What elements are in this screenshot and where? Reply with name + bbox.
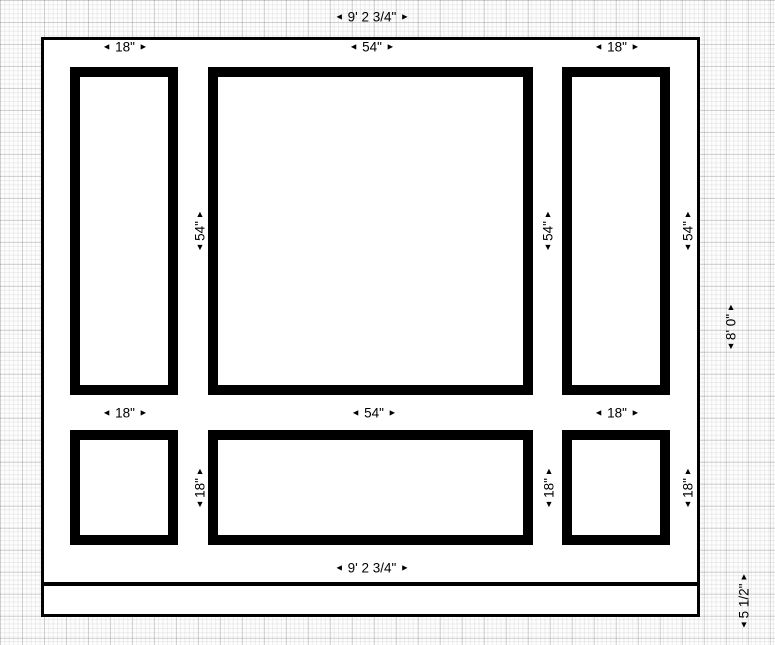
dim-text: 9' 2 3/4" [348,10,397,24]
dim-baseboard-height: ▲ 5 1/2" ▼ [737,573,751,630]
arrow-left-icon: ◄ [351,409,360,418]
arrow-right-icon: ► [388,409,397,418]
dim-bottom-left-width: ◄ 18" ► [102,406,148,420]
dim-bottom-right-height: ▲ 18" ▼ [681,467,695,509]
arrow-left-icon: ◄ [335,13,344,22]
arrow-left-icon: ◄ [349,43,358,52]
arrow-up-icon: ▲ [684,467,693,476]
arrow-left-icon: ◄ [594,409,603,418]
arrow-down-icon: ▼ [684,500,693,509]
arrow-up-icon: ▲ [684,210,693,219]
arrow-right-icon: ► [631,409,640,418]
arrow-right-icon: ► [139,409,148,418]
arrow-down-icon: ▼ [684,243,693,252]
dim-text: 8' 0" [724,314,738,340]
arrow-down-icon: ▼ [545,500,554,509]
dim-text: 54" [364,406,384,420]
panel-top-left [70,67,178,395]
panel-bottom-right [562,430,670,545]
dim-top-left-width: ◄ 18" ► [102,40,148,54]
dim-text: 54" [541,221,555,241]
drawing-canvas: ◄ 9' 2 3/4" ► ◄ 18" ► ◄ 54" ► ◄ 18" ► ▲ … [0,0,775,645]
arrow-up-icon: ▲ [545,467,554,476]
panel-top-right [562,67,670,395]
dim-overall-height: ▲ 8' 0" ▼ [724,303,738,351]
dim-text: 18" [115,406,135,420]
dim-top-right-height: ▲ 54" ▼ [681,210,695,252]
arrow-up-icon: ▲ [196,210,205,219]
baseboard-line [41,582,700,586]
arrow-left-icon: ◄ [102,43,111,52]
arrow-up-icon: ▲ [544,210,553,219]
arrow-right-icon: ► [631,43,640,52]
dim-top-right-width: ◄ 18" ► [594,40,640,54]
arrow-down-icon: ▼ [196,500,205,509]
dim-text: 18" [681,478,695,498]
dim-top-center-height: ▲ 54" ▼ [541,210,555,252]
panel-bottom-center [208,430,533,545]
dim-text: 18" [193,478,207,498]
arrow-up-icon: ▲ [740,573,749,582]
dim-text: 54" [681,221,695,241]
dim-bottom-left-height: ▲ 18" ▼ [193,467,207,509]
arrow-left-icon: ◄ [102,409,111,418]
arrow-up-icon: ▲ [196,467,205,476]
dim-top-left-height: ▲ 54" ▼ [193,210,207,252]
dim-text: 54" [193,221,207,241]
dim-top-center-width: ◄ 54" ► [349,40,395,54]
arrow-down-icon: ▼ [727,342,736,351]
dim-text: 9' 2 3/4" [348,561,397,575]
panel-bottom-left [70,430,178,545]
arrow-left-icon: ◄ [335,564,344,573]
arrow-right-icon: ► [400,564,409,573]
dim-bottom-right-width: ◄ 18" ► [594,406,640,420]
dim-bottom-center-width: ◄ 54" ► [351,406,397,420]
arrow-right-icon: ► [386,43,395,52]
arrow-right-icon: ► [400,13,409,22]
dim-text: 18" [607,40,627,54]
arrow-up-icon: ▲ [727,303,736,312]
arrow-down-icon: ▼ [196,243,205,252]
panel-top-center [208,67,533,395]
arrow-down-icon: ▼ [544,243,553,252]
dim-text: 18" [607,406,627,420]
dim-text: 18" [115,40,135,54]
arrow-right-icon: ► [139,43,148,52]
dim-overall-width-bottom: ◄ 9' 2 3/4" ► [335,561,410,575]
dim-text: 5 1/2" [737,584,751,619]
dim-text: 18" [542,478,556,498]
arrow-down-icon: ▼ [740,620,749,629]
dim-text: 54" [362,40,382,54]
dim-overall-width-top: ◄ 9' 2 3/4" ► [335,10,410,24]
arrow-left-icon: ◄ [594,43,603,52]
dim-bottom-center-height: ▲ 18" ▼ [542,467,556,509]
